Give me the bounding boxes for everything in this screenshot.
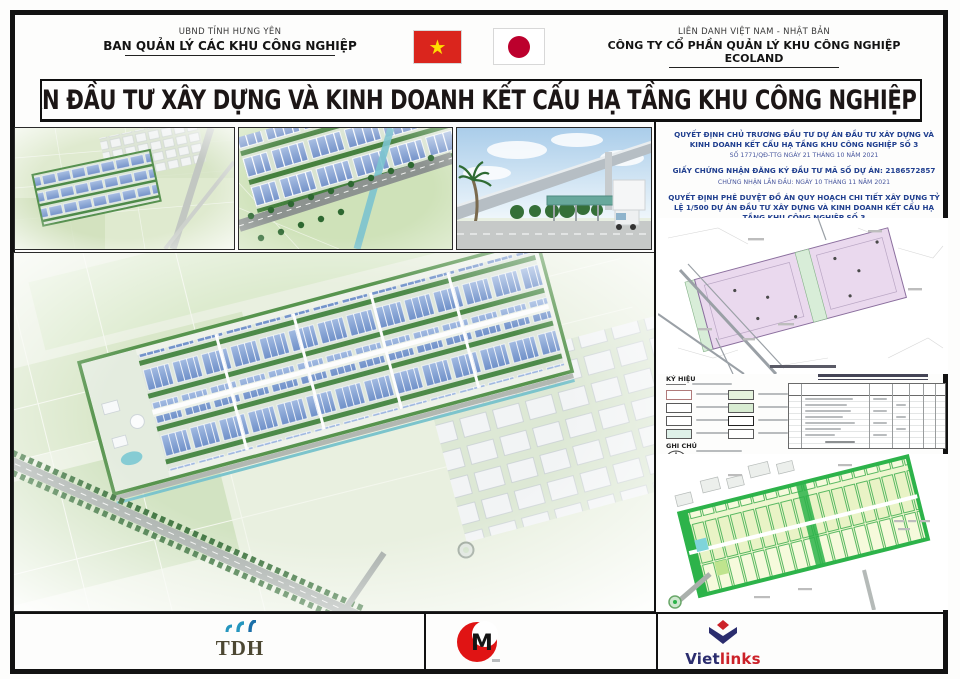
table-total-bar bbox=[825, 441, 855, 443]
table-column-line bbox=[923, 384, 924, 448]
table-header bbox=[789, 384, 945, 396]
render-master-aerial bbox=[13, 252, 655, 612]
legend-swatch bbox=[666, 390, 692, 400]
tdh-logo-text: TDH bbox=[190, 638, 290, 659]
table-cell-bar bbox=[873, 422, 887, 424]
vietlinks-viet: Viet bbox=[685, 650, 720, 668]
render-aerial-overview-art bbox=[15, 128, 234, 249]
location-plan-map bbox=[658, 218, 948, 374]
legend-label-bar bbox=[692, 383, 732, 385]
right-org-underline bbox=[669, 67, 839, 68]
vietlinks-links: links bbox=[720, 650, 761, 668]
right-org-line1: LIÊN DANH VIỆT NAM - NHẬT BẢN bbox=[578, 27, 930, 37]
legend-label-bar bbox=[758, 432, 788, 434]
project-title-band: DỰ ÁN ĐẦU TƯ XÂY DỰNG VÀ KINH DOANH KẾT … bbox=[40, 79, 922, 122]
master-plan-art bbox=[658, 454, 948, 610]
right-panel-divider bbox=[654, 121, 656, 612]
table-cell-bar bbox=[805, 404, 847, 406]
decision-title: GIẤY CHỨNG NHẬN ĐĂNG KÝ ĐẦU TƯ MÃ SỐ DỰ … bbox=[665, 166, 943, 176]
left-org-line1: UBND TỈNH HƯNG YÊN bbox=[80, 27, 380, 37]
legend-label-bar bbox=[758, 419, 788, 421]
render-factory-closeup-art bbox=[239, 128, 452, 249]
decision-title: QUYẾT ĐỊNH CHỦ TRƯƠNG ĐẦU TƯ DỰ ÁN ĐẦU T… bbox=[665, 130, 943, 150]
legend-swatch bbox=[666, 416, 692, 426]
master-plan-map bbox=[658, 454, 948, 610]
vietlinks-logo: Vietlinks bbox=[668, 620, 778, 667]
legend-swatch bbox=[728, 390, 754, 400]
table-cell-bar bbox=[805, 428, 841, 430]
legend-swatch bbox=[666, 403, 692, 413]
footer-divider bbox=[656, 612, 658, 669]
project-title: DỰ ÁN ĐẦU TƯ XÂY DỰNG VÀ KINH DOANH KẾT … bbox=[40, 85, 922, 116]
header-left-org: UBND TỈNH HƯNG YÊN BAN QUẢN LÝ CÁC KHU C… bbox=[80, 27, 380, 56]
legend-label-bar bbox=[696, 432, 730, 434]
table-cell-bar bbox=[805, 398, 853, 400]
legend-line-swatch bbox=[666, 384, 686, 385]
right-org-line2: CÔNG TY CỔ PHẦN QUẢN LÝ KHU CÔNG NGHIỆP … bbox=[578, 39, 930, 65]
vietlinks-logo-text: Vietlinks bbox=[668, 652, 778, 667]
note-text-bar bbox=[696, 450, 742, 452]
table-column-line bbox=[909, 384, 910, 448]
legend-label-bar bbox=[696, 406, 730, 408]
table-cell-bar bbox=[896, 416, 906, 418]
vietlinks-logo-mark-icon bbox=[704, 620, 742, 648]
decision-item: QUYẾT ĐỊNH CHỦ TRƯƠNG ĐẦU TƯ DỰ ÁN ĐẦU T… bbox=[665, 130, 943, 160]
decision-sub: SỐ 1771/QĐ-TTG NGÀY 21 THÁNG 10 NĂM 2021 bbox=[665, 151, 943, 160]
legend-label-bar bbox=[758, 393, 788, 395]
table-cell-bar bbox=[873, 434, 887, 436]
table-cell-bar bbox=[896, 404, 906, 406]
legend-swatch bbox=[728, 416, 754, 426]
table-column-line bbox=[869, 384, 870, 448]
japan-sun-icon bbox=[508, 36, 530, 58]
legend-title: KÝ HIỆU bbox=[666, 375, 696, 383]
billboard-poster: UBND TỈNH HƯNG YÊN BAN QUẢN LÝ CÁC KHU C… bbox=[0, 0, 960, 679]
table-cell-bar bbox=[805, 410, 851, 412]
decision-item: GIẤY CHỨNG NHẬN ĐĂNG KÝ ĐẦU TƯ MÃ SỐ DỰ … bbox=[665, 166, 943, 186]
tdh-logo-mark-icon bbox=[219, 620, 261, 634]
render-entrance-gate bbox=[456, 127, 652, 250]
legend-label-bar bbox=[696, 393, 730, 395]
left-org-line2: BAN QUẢN LÝ CÁC KHU CÔNG NGHIỆP bbox=[80, 39, 380, 53]
table-cell-bar bbox=[896, 428, 906, 430]
table-column-line bbox=[935, 384, 936, 448]
vietnam-star-icon: ★ bbox=[429, 37, 447, 57]
table-column-line bbox=[892, 384, 893, 448]
legend-swatch bbox=[666, 429, 692, 439]
render-master-aerial-art bbox=[14, 253, 654, 611]
footer-divider bbox=[424, 612, 426, 669]
header-right-org: LIÊN DANH VIỆT NAM - NHẬT BẢN CÔNG TY CỔ… bbox=[578, 27, 930, 68]
cm-logo-letter: M bbox=[471, 631, 493, 656]
left-org-underline bbox=[125, 55, 335, 56]
location-plan-art bbox=[658, 218, 948, 374]
tdh-logo: TDH bbox=[190, 619, 290, 659]
land-use-table bbox=[788, 383, 946, 449]
table-cell-bar bbox=[805, 416, 843, 418]
table-cell-bar bbox=[873, 410, 887, 412]
legend-label-bar bbox=[696, 419, 730, 421]
table-cell-bar bbox=[805, 434, 835, 436]
legend-swatch bbox=[728, 403, 754, 413]
japan-flag bbox=[494, 29, 544, 64]
legend-swatch bbox=[728, 429, 754, 439]
table-title-bar bbox=[818, 374, 928, 377]
table-title-underline bbox=[818, 379, 928, 380]
render-entrance-gate-art bbox=[457, 128, 651, 249]
render-factory-closeup bbox=[238, 127, 453, 250]
cm-logo-mark-icon: M bbox=[452, 617, 512, 667]
render-aerial-overview bbox=[14, 127, 235, 250]
table-column-line bbox=[801, 384, 802, 448]
cm-logo: M bbox=[452, 617, 512, 667]
vietnam-flag: ★ bbox=[414, 31, 461, 63]
legend-section: KÝ HIỆU GHI CHÚ bbox=[658, 372, 948, 454]
footer-top-rule bbox=[14, 612, 946, 614]
table-cell-bar bbox=[873, 398, 887, 400]
table-cell-bar bbox=[805, 422, 855, 424]
decision-sub: CHỨNG NHẬN LẦN ĐẦU: NGÀY 10 THÁNG 11 NĂM… bbox=[665, 178, 943, 187]
legend-label-bar bbox=[758, 406, 788, 408]
